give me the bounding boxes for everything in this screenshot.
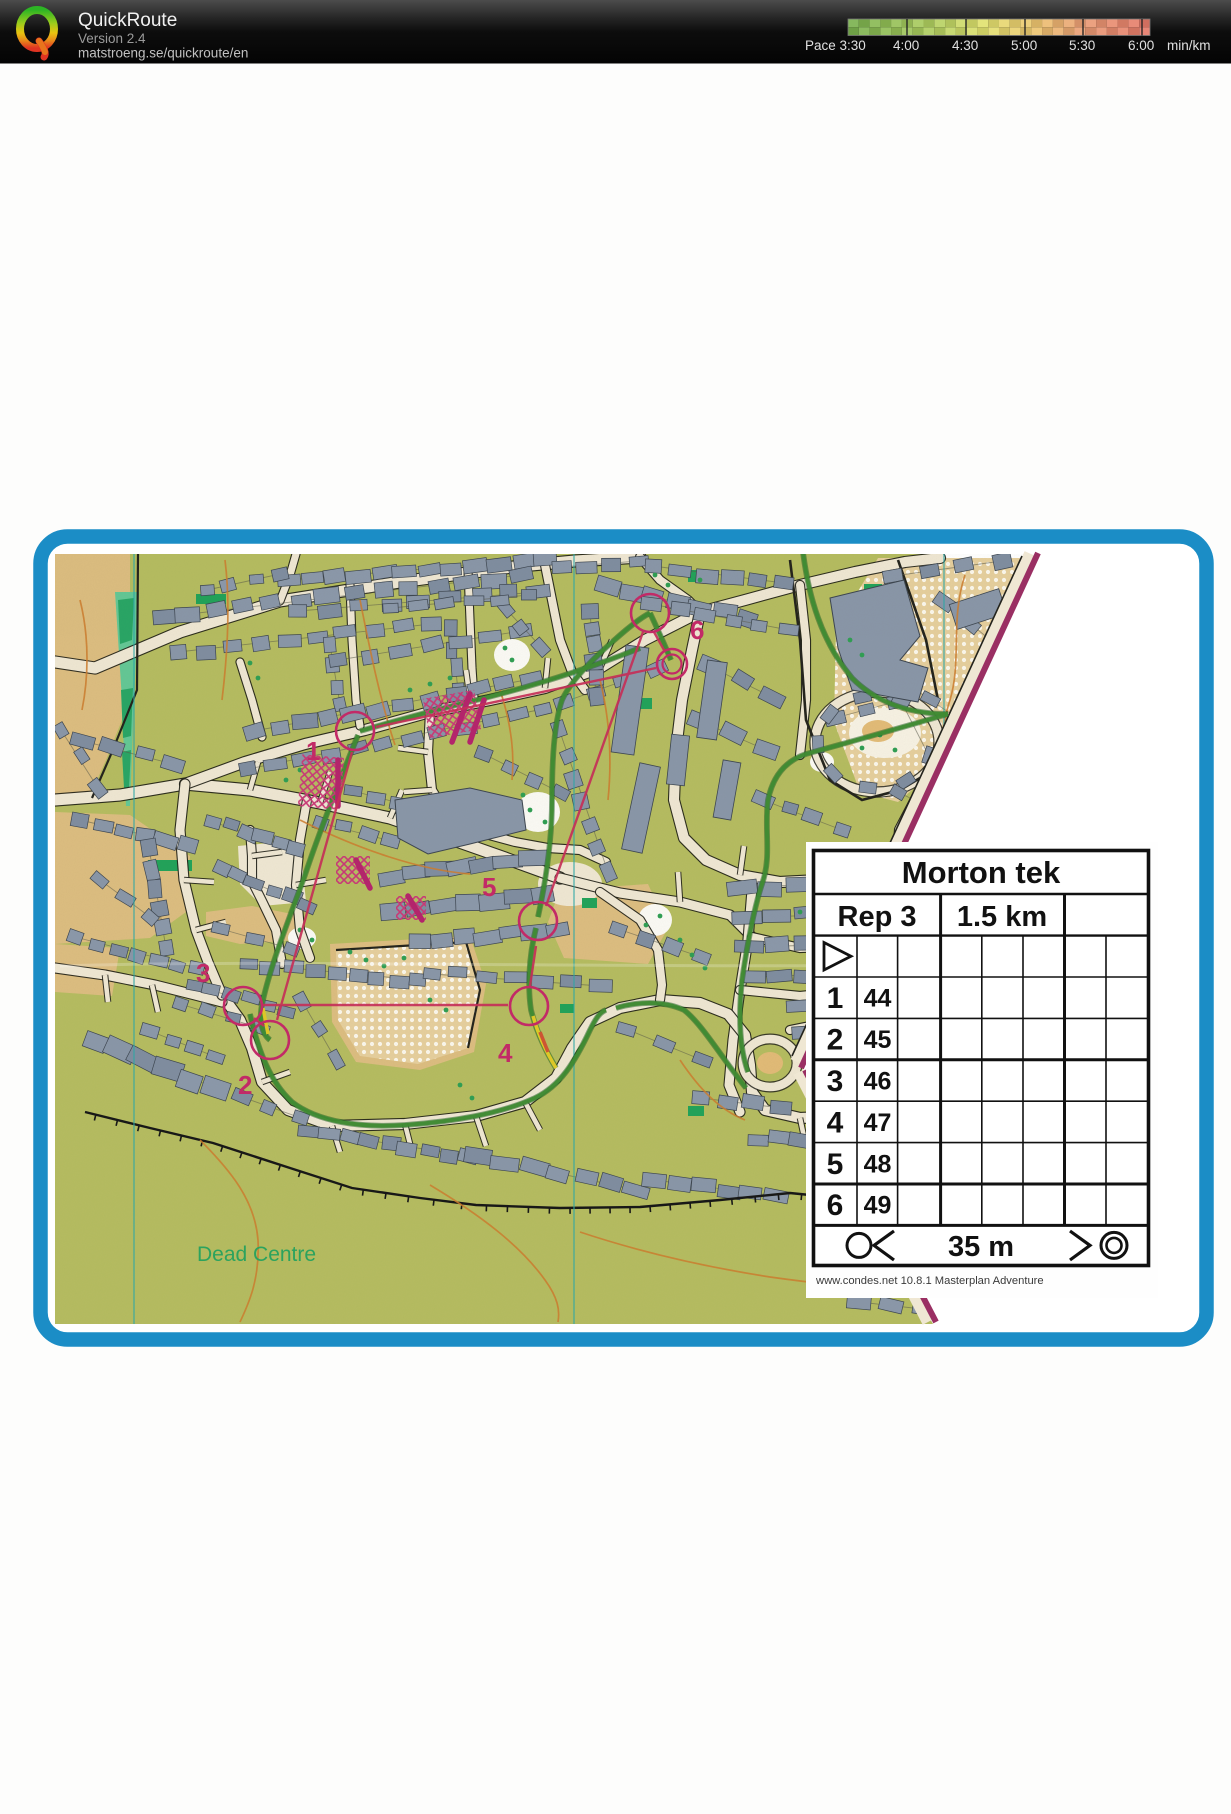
svg-text:6: 6 [690,615,704,645]
svg-text:6: 6 [827,1189,844,1222]
svg-text:4: 4 [498,1038,513,1068]
svg-text:4:30: 4:30 [952,38,978,53]
svg-text:QuickRoute: QuickRoute [78,10,177,31]
svg-text:min/km: min/km [1167,38,1211,53]
svg-text:44: 44 [864,985,892,1013]
svg-text:1.5 km: 1.5 km [957,901,1047,933]
svg-text:2: 2 [238,1070,252,1100]
svg-text:matstroeng.se/quickroute/en: matstroeng.se/quickroute/en [78,46,248,61]
svg-text:35 m: 35 m [948,1231,1014,1263]
svg-text:46: 46 [864,1068,892,1096]
svg-text:3: 3 [827,1065,844,1098]
svg-text:1: 1 [306,736,320,766]
svg-text:3: 3 [196,958,210,988]
svg-text:5: 5 [482,872,496,902]
svg-text:5:30: 5:30 [1069,38,1095,53]
svg-text:www.condes.net 10.8.1 Masterpl: www.condes.net 10.8.1 Masterplan Adventu… [815,1275,1044,1287]
svg-text:1: 1 [827,982,844,1015]
svg-text:5: 5 [827,1148,844,1181]
svg-text:47: 47 [864,1109,892,1137]
svg-text:Pace 3:30: Pace 3:30 [805,38,866,53]
svg-text:Rep 3: Rep 3 [838,901,917,933]
svg-text:48: 48 [864,1150,892,1178]
svg-text:2: 2 [827,1024,844,1057]
svg-text:45: 45 [864,1026,892,1054]
svg-text:Dead Centre: Dead Centre [197,1243,316,1266]
svg-text:Morton tek: Morton tek [902,855,1061,890]
svg-text:5:00: 5:00 [1011,38,1037,53]
svg-text:49: 49 [864,1192,892,1220]
svg-text:Version 2.4: Version 2.4 [78,31,146,46]
svg-text:4: 4 [827,1106,844,1139]
svg-text:4:00: 4:00 [893,38,919,53]
svg-text:6:00: 6:00 [1128,38,1154,53]
